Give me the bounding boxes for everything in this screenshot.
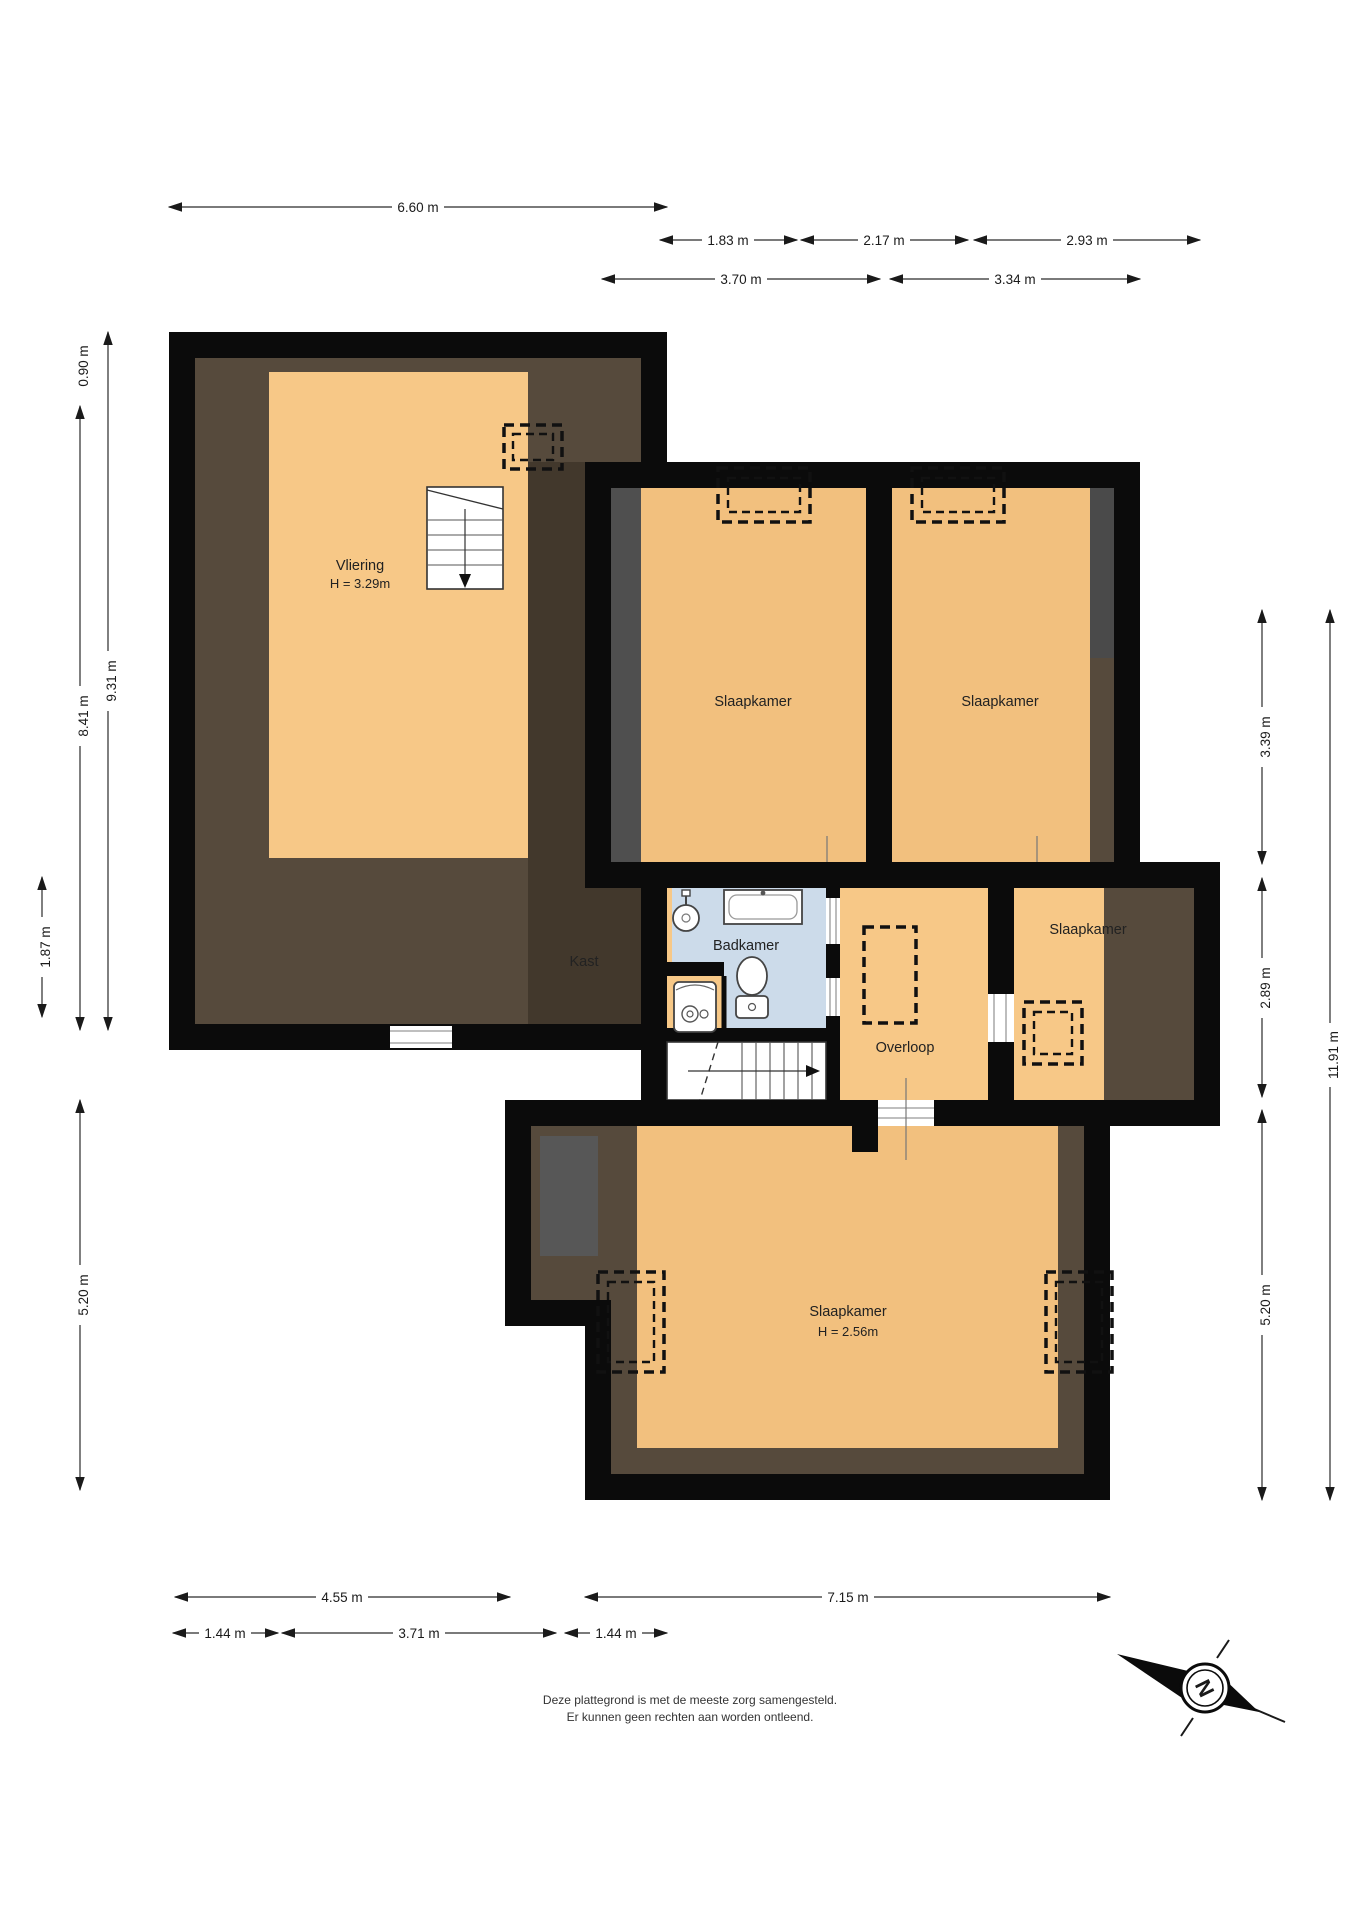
dim-top-334: 3.34 m <box>994 272 1035 287</box>
bottom-bedroom-block: Slaapkamer H = 2.56m <box>505 1078 1112 1500</box>
top-block-right-roof-brown <box>1090 658 1114 862</box>
dim-bottom-144a: 1.44 m <box>204 1626 245 1641</box>
dimensions-top: 6.60 m 1.83 m 2.17 m 2.93 m 3.70 m 3.34 … <box>169 199 1200 287</box>
dimensions-right: 3.39 m 2.89 m 5.20 m 11.91 m <box>1253 610 1341 1500</box>
bottom-bedroom-wall-stub <box>852 1100 878 1152</box>
toilet <box>736 957 768 1018</box>
dim-right-520: 5.20 m <box>1258 1284 1273 1325</box>
room-label-overloop: Overloop <box>876 1040 935 1056</box>
dim-bottom-715: 7.15 m <box>827 1590 868 1605</box>
dim-left-841: 8.41 m <box>76 695 91 736</box>
dim-left-931: 9.31 m <box>104 660 119 701</box>
dim-left-187: 1.87 m <box>38 926 53 967</box>
footer-line1: Deze plattegrond is met de meeste zorg s… <box>543 1693 837 1707</box>
dim-left-520: 5.20 m <box>76 1274 91 1315</box>
footer-disclaimer: Deze plattegrond is met de meeste zorg s… <box>543 1693 837 1724</box>
top-block-right-roof-gray <box>1090 488 1114 658</box>
dim-top-370: 3.70 m <box>720 272 761 287</box>
room-height-vliering: H = 3.29m <box>330 576 390 591</box>
room-label-badkamer: Badkamer <box>713 938 779 954</box>
middle-block: Kast Badkamer Overloop Slaapkamer <box>569 862 1220 1126</box>
dimensions-left: 0.90 m 8.41 m 9.31 m 1.87 m 5.20 m <box>33 330 119 1490</box>
dim-top-183: 1.83 m <box>707 233 748 248</box>
staircase-main <box>667 1042 826 1100</box>
badkamer-right-wall <box>826 888 840 1100</box>
dim-left-090: 0.90 m <box>76 345 91 386</box>
bottom-bedroom-floor <box>637 1126 1058 1448</box>
room-label-slaapkamer-bottom: Slaapkamer <box>809 1304 887 1320</box>
room-height-slaapkamer-bottom: H = 2.56m <box>818 1324 878 1339</box>
top-block-floor <box>611 488 1114 862</box>
top-bedroom-block: Slaapkamer Slaapkamer <box>585 462 1140 914</box>
vliering-window <box>390 1026 452 1048</box>
vliering-floor <box>269 372 528 858</box>
staircase-vliering <box>427 487 503 589</box>
dim-bottom-455: 4.55 m <box>321 1590 362 1605</box>
bottom-block-roof-gray <box>540 1136 598 1256</box>
room-label-slaapkamer-top-left: Slaapkamer <box>714 694 792 710</box>
dim-top-217: 2.17 m <box>863 233 904 248</box>
room-label-slaapkamer-top-right: Slaapkamer <box>961 694 1039 710</box>
bathtub <box>724 890 802 924</box>
floorplan-canvas: Vliering H = 3.29m <box>0 0 1358 1920</box>
boiler <box>674 982 716 1032</box>
compass-rose: N <box>1117 1640 1285 1736</box>
dim-right-339: 3.39 m <box>1258 716 1273 757</box>
top-block-left-roof-strip <box>611 488 641 862</box>
room3-roof-strip <box>1104 888 1194 1100</box>
room3-wall <box>988 888 1014 1100</box>
dim-top-660: 6.60 m <box>397 200 438 215</box>
dimensions-bottom: 4.55 m 7.15 m 1.44 m 3.71 m 1.44 m <box>173 1589 1110 1641</box>
dim-bottom-144b: 1.44 m <box>595 1626 636 1641</box>
room-label-vliering: Vliering <box>336 558 384 574</box>
room-label-kast: Kast <box>569 954 598 970</box>
wall-between-bedrooms <box>866 488 892 862</box>
room-label-slaapkamer-mid-right: Slaapkamer <box>1049 922 1127 938</box>
footer-line2: Er kunnen geen rechten aan worden ontlee… <box>567 1710 814 1724</box>
floorplan-page: Vliering H = 3.29m <box>0 0 1358 1920</box>
dim-bottom-371: 3.71 m <box>398 1626 439 1641</box>
badkamer-inner-wall-h <box>667 962 724 976</box>
dim-right-289: 2.89 m <box>1258 967 1273 1008</box>
dim-right-1191: 11.91 m <box>1326 1031 1341 1079</box>
dim-top-293: 2.93 m <box>1066 233 1107 248</box>
